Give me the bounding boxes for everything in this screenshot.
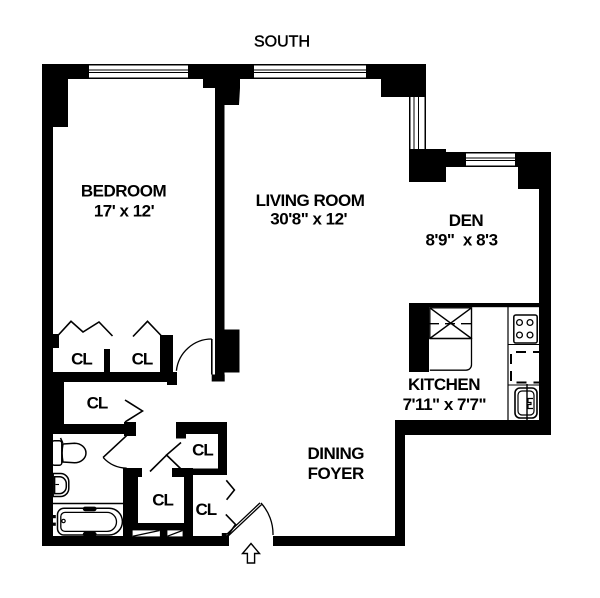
svg-text:DINING: DINING: [307, 444, 364, 463]
svg-text:FOYER: FOYER: [308, 464, 364, 483]
svg-text:CL: CL: [195, 500, 216, 519]
svg-text:BEDROOM: BEDROOM: [81, 182, 167, 201]
svg-text:CL: CL: [192, 440, 213, 459]
svg-text:LIVING ROOM: LIVING ROOM: [256, 191, 365, 210]
svg-text:CL: CL: [152, 491, 173, 510]
svg-text:KITCHEN: KITCHEN: [408, 375, 480, 394]
svg-text:CL: CL: [87, 394, 108, 413]
svg-text:CL: CL: [132, 349, 153, 368]
svg-text:7'11" x 7'7": 7'11" x 7'7": [403, 395, 486, 414]
svg-text:DEN: DEN: [449, 211, 484, 230]
svg-text:30'8" x 12': 30'8" x 12': [270, 209, 347, 228]
svg-text:CL: CL: [71, 349, 92, 368]
svg-text:8'9" x 8'3: 8'9" x 8'3: [425, 231, 497, 250]
svg-text:17' x 12': 17' x 12': [94, 201, 155, 220]
svg-text:SOUTH: SOUTH: [254, 34, 310, 51]
